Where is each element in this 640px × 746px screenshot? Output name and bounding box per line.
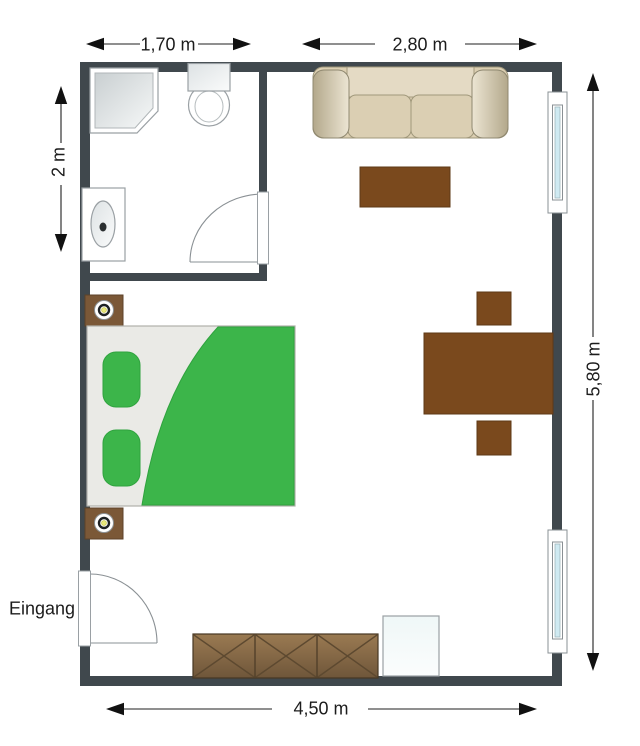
sofa-seat-cushion-right	[411, 95, 474, 138]
pillow-top	[103, 352, 140, 407]
chair-top	[477, 292, 511, 325]
coffee-table	[360, 167, 450, 207]
floor-plan-canvas: 1,70 m 2,80 m 2 m 5,80 m 4,50 m Eingang	[0, 0, 640, 746]
sofa	[313, 67, 508, 138]
sofa-backrest	[347, 67, 474, 97]
chair-bottom	[477, 421, 511, 455]
bed	[87, 326, 295, 506]
window-1-glass	[555, 107, 560, 198]
sideboard	[193, 634, 378, 678]
lamp-bottom-icon	[95, 514, 114, 533]
dining-table	[424, 333, 553, 414]
wall-left-lower	[80, 645, 90, 686]
appliance-box	[383, 616, 439, 676]
sink-drain	[100, 223, 107, 232]
lamp-bottom-bulb	[102, 521, 107, 526]
dimension-bath-width-label: 1,70 m	[140, 35, 195, 55]
lamp-top-bulb	[102, 308, 107, 313]
lamp-top-icon	[95, 301, 114, 320]
window-2	[548, 530, 567, 653]
bathroom-door-frame	[258, 192, 269, 264]
dimension-room-depth-label: 5,80 m	[584, 341, 604, 396]
sofa-armrest-right	[472, 70, 508, 138]
window-2-glass	[555, 544, 560, 637]
dimension-living-width-label: 2,80 m	[392, 35, 447, 55]
sofa-armrest-left	[313, 70, 349, 138]
entrance-label: Eingang	[9, 599, 75, 619]
toilet-tank	[188, 64, 230, 92]
toilet	[188, 64, 230, 127]
sink	[82, 188, 125, 261]
wall-bathroom-horizontal	[90, 273, 267, 281]
bed-area	[85, 295, 295, 539]
floor-plan-drawing: 1,70 m 2,80 m 2 m 5,80 m 4,50 m Eingang	[0, 0, 640, 746]
window-1	[548, 92, 567, 213]
pillow-bottom	[103, 430, 140, 486]
wall-bathroom-vertical	[259, 72, 267, 194]
dimension-room-width-label: 4,50 m	[293, 699, 348, 719]
toilet-bowl-inner	[195, 91, 223, 122]
entrance-door-frame	[79, 571, 91, 646]
dimension-bath-depth-label: 2 m	[49, 147, 69, 177]
wall-right-lower	[552, 652, 562, 686]
wall-right-upper	[552, 62, 562, 93]
sofa-seat-cushion-left	[348, 95, 411, 138]
